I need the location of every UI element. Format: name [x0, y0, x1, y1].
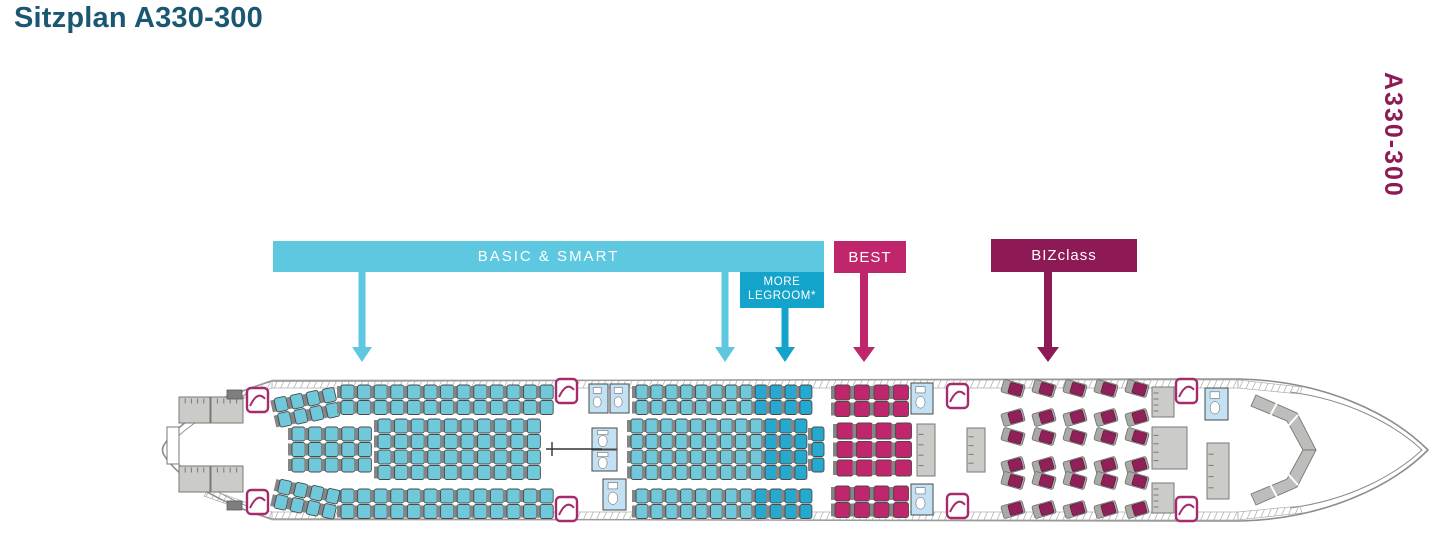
toilet-icon — [916, 488, 925, 494]
galley — [211, 466, 243, 492]
legend-arrow — [1037, 272, 1059, 362]
seat-column — [853, 423, 873, 476]
best-middle — [833, 423, 912, 476]
galley — [1207, 443, 1229, 499]
exit-door — [247, 490, 268, 514]
exit-door — [247, 388, 268, 412]
galley — [179, 466, 210, 492]
exit-door — [1176, 379, 1197, 403]
lavatory — [592, 428, 617, 449]
lavatory — [1205, 388, 1228, 420]
mid-legroom-extra-column — [808, 427, 824, 472]
toilet-icon — [608, 492, 618, 504]
seat-column — [808, 427, 824, 472]
seatmap-page: { "page": { "title": "Sitzplan A330-300"… — [0, 0, 1450, 540]
galley — [917, 424, 935, 476]
exit-door — [556, 497, 577, 521]
exit-door — [947, 494, 968, 518]
tail-bulkhead-panel — [167, 427, 179, 464]
lavatory — [589, 384, 608, 413]
toilet-icon — [1210, 402, 1220, 414]
galley — [1152, 483, 1174, 513]
seat-column — [892, 423, 912, 476]
lavatory — [911, 484, 933, 515]
legend-basic-smart-label: BASIC & SMART — [478, 248, 620, 265]
seat-column — [288, 427, 305, 472]
stowage-box — [227, 390, 242, 399]
legend-arrow — [775, 308, 795, 362]
rear-economy-middle-3 — [288, 427, 371, 472]
toilet-icon — [608, 483, 618, 489]
legend-basic-smart-banner: BASIC & SMART — [273, 241, 824, 272]
lavatory — [592, 450, 617, 471]
toilet-icon — [598, 431, 609, 435]
toilet-icon — [916, 387, 925, 393]
galley — [1152, 387, 1174, 417]
legend-best-banner: BEST — [834, 241, 906, 273]
seat-column — [872, 423, 892, 476]
legend-bizclass-label: BIZclass — [1031, 247, 1097, 264]
seat-column — [305, 427, 322, 472]
legend-arrow — [853, 273, 875, 362]
toilet-icon — [593, 397, 601, 407]
legend-best-label: BEST — [848, 249, 891, 266]
toilet-icon — [1210, 392, 1220, 398]
seat-column — [321, 427, 338, 472]
legend-more-legroom-banner: MORE LEGROOM* — [740, 272, 824, 308]
galley — [1152, 427, 1187, 469]
toilet-icon — [598, 435, 607, 446]
toilet-icon — [916, 497, 925, 509]
exit-door — [1176, 497, 1197, 521]
legend-more-legroom-label-line1: MORE — [764, 276, 801, 290]
galley — [967, 428, 985, 472]
exit-door — [947, 384, 968, 408]
galley — [211, 397, 243, 423]
toilet-icon — [598, 457, 607, 468]
seat-column — [833, 423, 853, 476]
galley — [179, 397, 210, 423]
toilet-icon — [916, 396, 925, 408]
legend-arrow — [715, 272, 735, 362]
legend-arrows — [352, 272, 1059, 362]
toilet-icon — [614, 387, 622, 393]
stowage-box — [227, 501, 242, 510]
toilet-icon — [614, 397, 622, 407]
toilet-icon — [598, 453, 609, 457]
seat-column — [338, 427, 355, 472]
lavatory — [603, 479, 626, 510]
legend-arrow — [352, 272, 372, 362]
lavatory — [610, 384, 629, 413]
seat-column — [354, 427, 371, 472]
toilet-icon — [593, 387, 601, 393]
lavatory — [911, 383, 933, 414]
exit-door — [556, 379, 577, 403]
legend-bizclass-banner: BIZclass — [991, 239, 1137, 272]
legend-more-legroom-label-line2: LEGROOM* — [748, 290, 816, 304]
